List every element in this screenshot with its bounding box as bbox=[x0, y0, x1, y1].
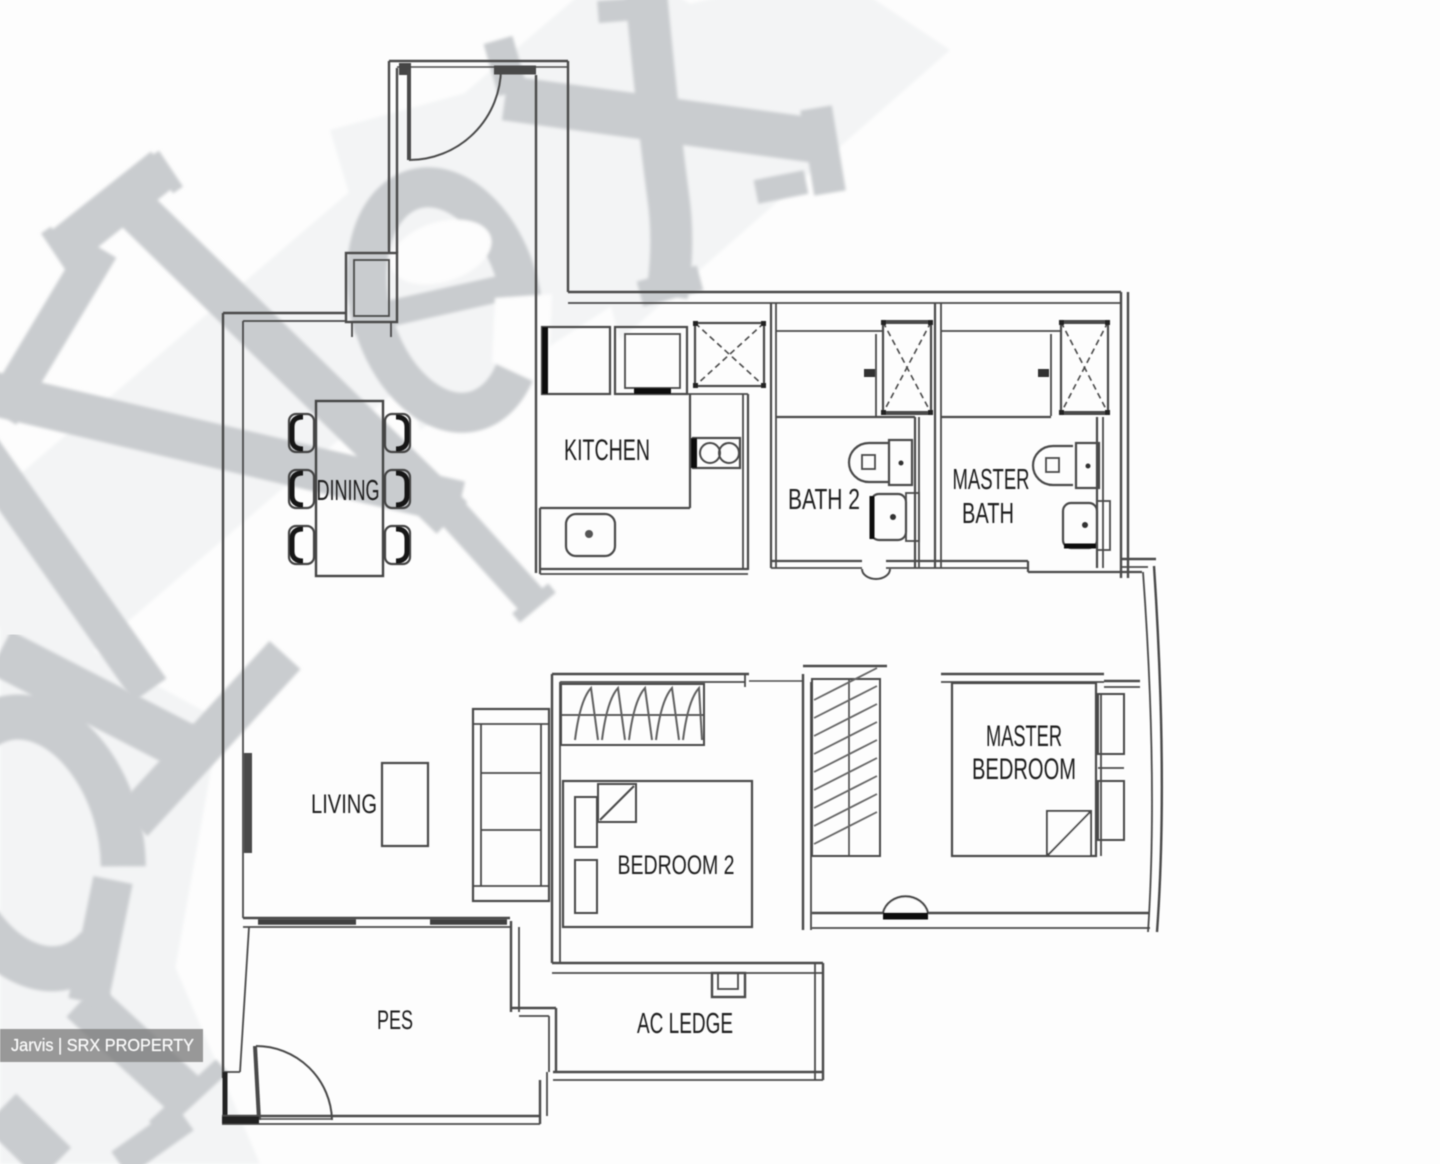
svg-text:MASTER: MASTER bbox=[953, 464, 1030, 496]
svg-text:Jarvis | SRX PROPERTY: Jarvis | SRX PROPERTY bbox=[11, 1035, 194, 1055]
svg-text:KITCHEN: KITCHEN bbox=[564, 434, 650, 467]
svg-text:LIVING: LIVING bbox=[311, 789, 377, 819]
svg-text:MASTER: MASTER bbox=[986, 720, 1062, 753]
svg-text:DINING: DINING bbox=[317, 475, 380, 507]
svg-text:AC LEDGE: AC LEDGE bbox=[637, 1008, 733, 1040]
svg-text:PES: PES bbox=[377, 1005, 413, 1035]
svg-text:BATH: BATH bbox=[962, 498, 1014, 530]
svg-text:BEDROOM: BEDROOM bbox=[972, 753, 1076, 786]
svg-text:BEDROOM 2: BEDROOM 2 bbox=[618, 850, 735, 880]
svg-text:BATH 2: BATH 2 bbox=[788, 484, 860, 516]
